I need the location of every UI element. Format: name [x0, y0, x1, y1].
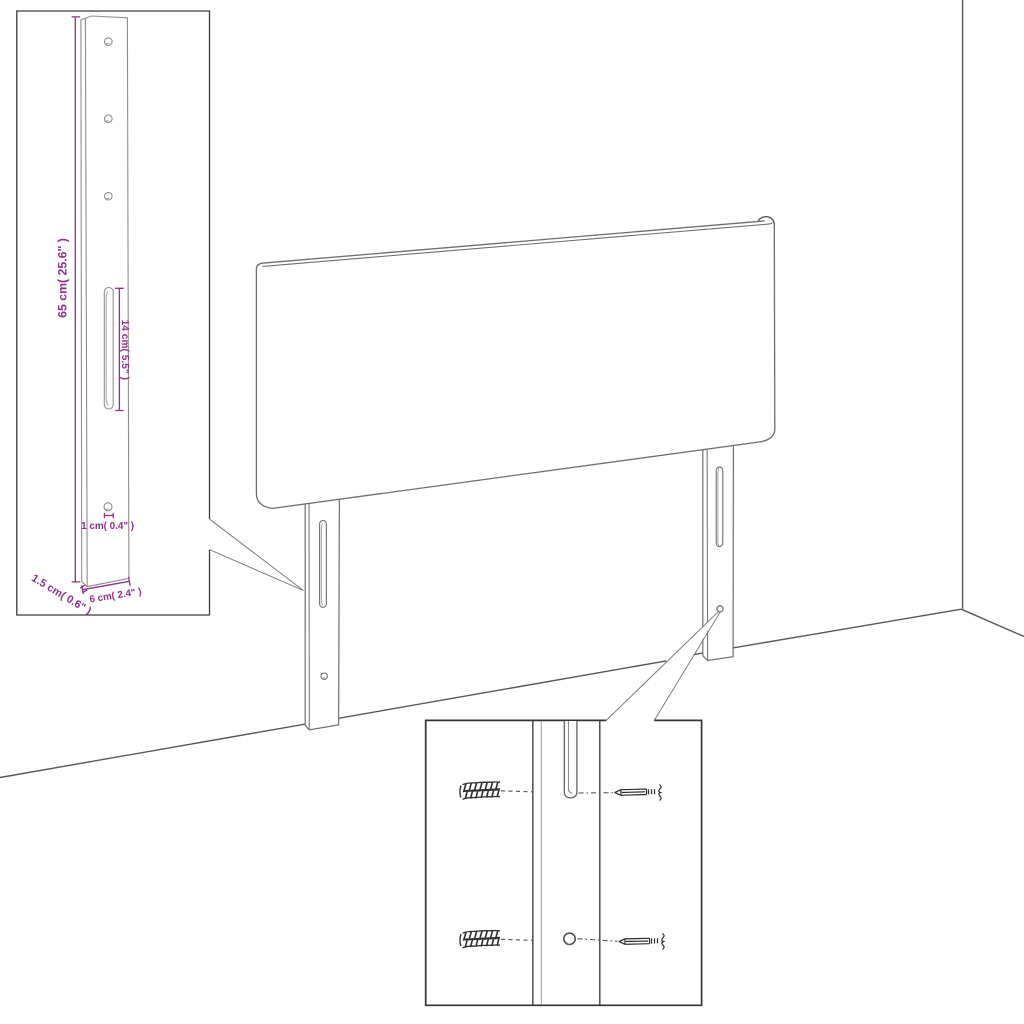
- svg-text:1 cm( 0.4" ): 1 cm( 0.4" ): [81, 521, 134, 532]
- svg-text:14 cm( 5.5" ): 14 cm( 5.5" ): [119, 320, 130, 380]
- svg-text:65 cm( 25.6" ): 65 cm( 25.6" ): [56, 238, 70, 318]
